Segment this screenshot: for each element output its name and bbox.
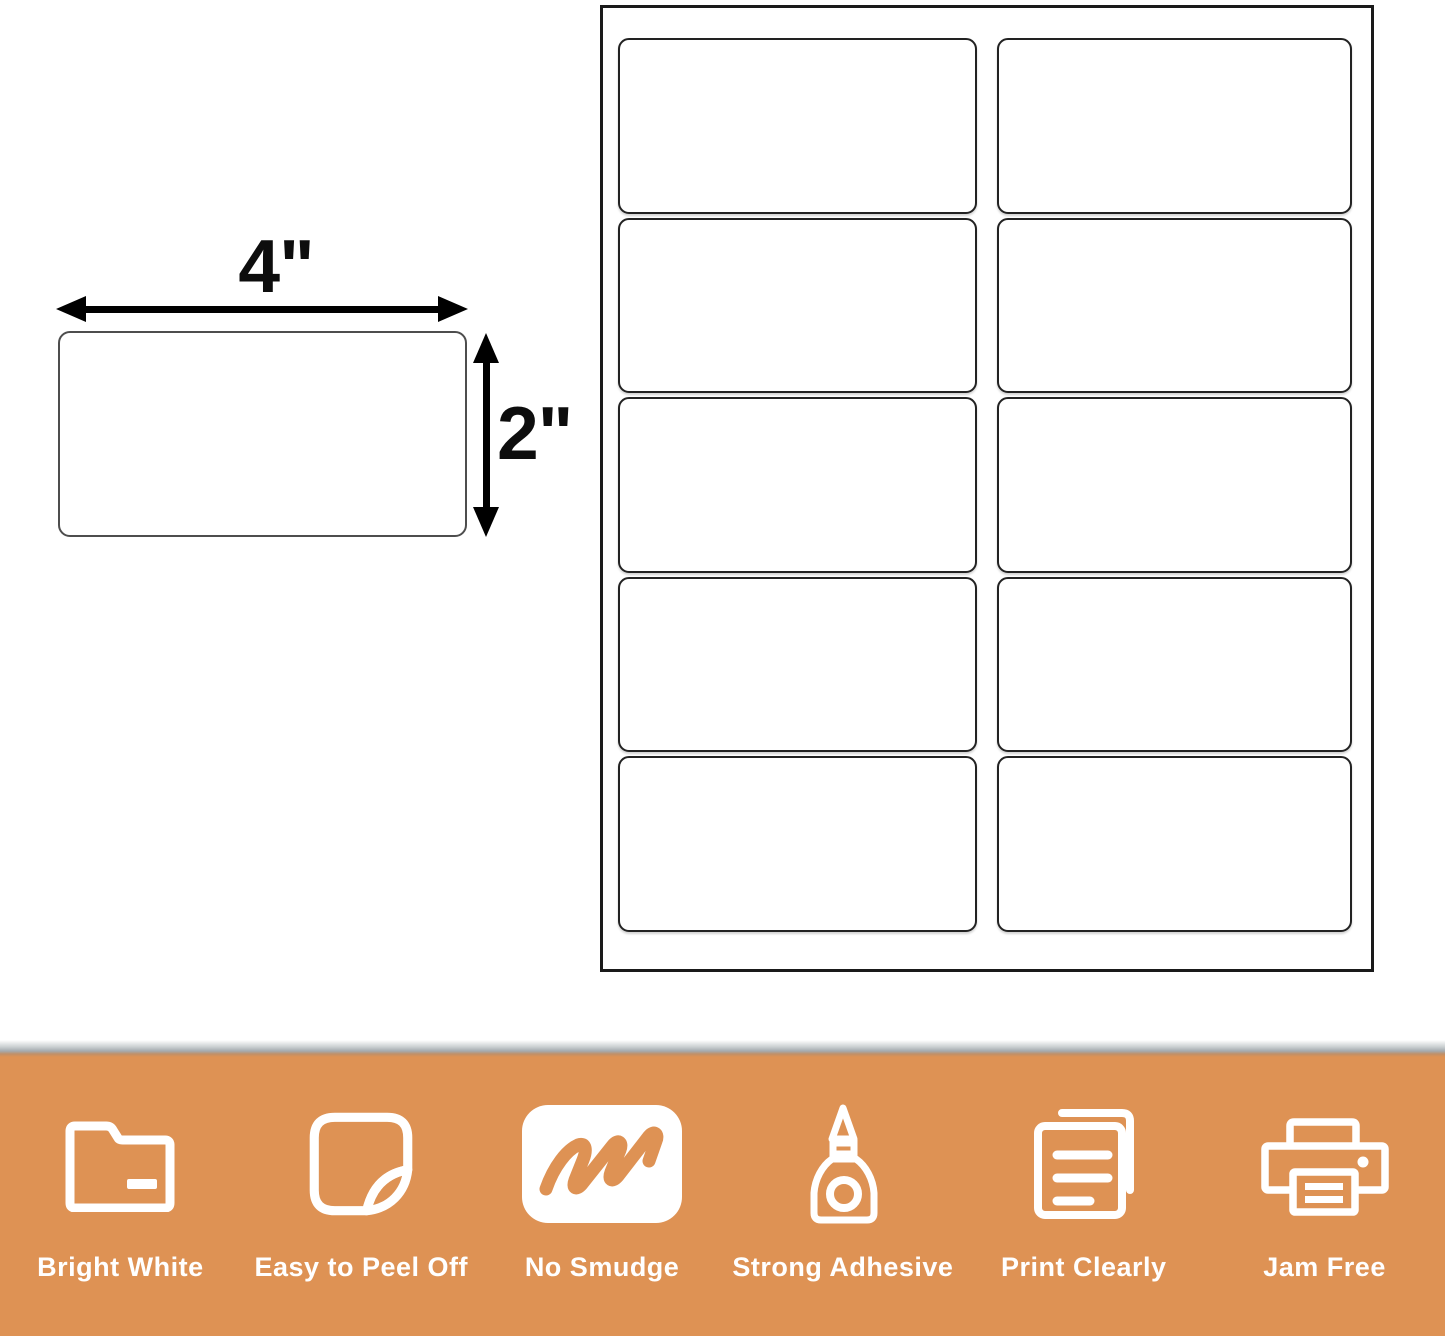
arrow-left-icon [56,296,86,322]
glue-bottle-icon [796,1098,890,1230]
sample-label-rectangle [58,331,467,537]
feature-label: Easy to Peel Off [254,1252,468,1283]
arrow-up-icon [473,333,499,363]
label-cell [618,577,977,753]
label-cell [618,756,977,932]
feature-item-jam-free: Jam Free [1204,1098,1445,1283]
arrow-down-icon [473,507,499,537]
label-cell [997,756,1352,932]
feature-label: Bright White [37,1252,203,1283]
feature-label: Jam Free [1263,1252,1386,1283]
no-smudge-marker-icon [522,1098,682,1230]
features-banner: Bright White Easy to Peel Off [0,1040,1445,1336]
label-cell [997,397,1352,573]
label-cell [997,577,1352,753]
vertical-dimension-arrow [483,358,490,510]
folder-icon [61,1098,179,1230]
width-dimension-label: 4" [171,231,381,302]
label-cell [618,38,977,214]
feature-label: No Smudge [525,1252,680,1283]
document-pages-icon [1028,1098,1140,1230]
feature-label: Strong Adhesive [732,1252,953,1283]
feature-item-no-smudge: No Smudge [482,1098,723,1283]
feature-item-print-clearly: Print Clearly [963,1098,1204,1283]
feature-item-bright-white: Bright White [0,1098,241,1283]
arrow-right-icon [438,296,468,322]
feature-item-strong-adhesive: Strong Adhesive [722,1098,963,1283]
horizontal-dimension-arrow [80,306,440,313]
printer-icon [1260,1098,1390,1230]
feature-item-easy-to-peel-off: Easy to Peel Off [241,1098,482,1283]
height-dimension-label: 2" [497,398,572,469]
label-cell [618,397,977,573]
label-cell [997,38,1352,214]
label-cell [618,218,977,394]
feature-label: Print Clearly [1001,1252,1167,1283]
label-cell [997,218,1352,394]
product-infographic: 4" 2" Bright White [0,0,1445,1336]
label-grid [618,38,1350,932]
label-sheet [600,5,1374,972]
features-row: Bright White Easy to Peel Off [0,1098,1445,1283]
peel-sticker-icon [304,1098,418,1230]
